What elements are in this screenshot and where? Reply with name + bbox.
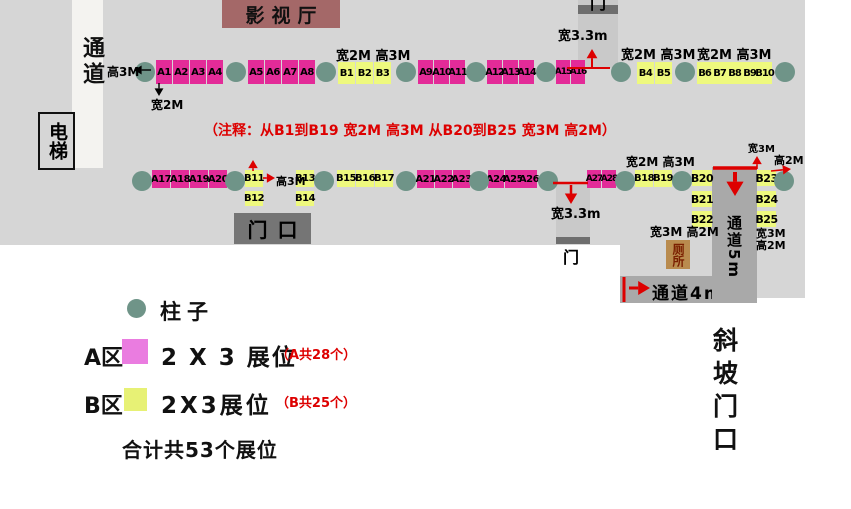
booth-a6: A6 <box>265 60 281 84</box>
column-marker <box>469 171 489 191</box>
booth-a9: A9 <box>418 60 433 84</box>
booth-layer: A1A2A3A4A5A6A7A8B1B2B3A9A10A11A12A13A14A… <box>0 0 851 509</box>
dimension-label: 宽3.3m <box>558 25 608 44</box>
column-marker <box>466 62 486 82</box>
booth-b6: B6 <box>697 62 712 84</box>
booth-a27: A27 <box>587 170 601 188</box>
floor-plan: 通道 电梯 影视厅 门 门 门口 通道4m 通道5m 厕所 斜坡门口 （注释：从… <box>0 0 851 509</box>
booth-b18: B18 <box>635 170 653 187</box>
column-marker <box>615 171 635 191</box>
column-marker <box>611 62 631 82</box>
booth-a26: A26 <box>521 170 537 188</box>
booth-b14: B14 <box>296 191 314 206</box>
booth-b10: B10 <box>757 62 772 84</box>
column-marker <box>536 62 556 82</box>
booth-b19: B19 <box>654 170 672 187</box>
column-marker <box>775 62 795 82</box>
dimension-label: 宽3M 高2M <box>650 223 719 240</box>
booth-a12: A12 <box>487 60 502 84</box>
legend-column-swatch <box>127 299 146 318</box>
booth-b4: B4 <box>637 62 654 84</box>
booth-a14: A14 <box>519 60 534 84</box>
booth-a16: A16 <box>571 60 585 84</box>
booth-b12: B12 <box>245 191 263 206</box>
booth-a18: A18 <box>171 170 189 188</box>
booth-a23: A23 <box>453 170 470 188</box>
legend-total: 合计共53个展位 <box>122 434 278 463</box>
legend-a-zone: A区 <box>84 340 123 372</box>
dimension-label: 宽2M 高3M <box>336 45 411 64</box>
booth-a10: A10 <box>434 60 449 84</box>
booth-a21: A21 <box>417 170 434 188</box>
booth-b20: B20 <box>692 170 712 186</box>
booth-a8: A8 <box>299 60 315 84</box>
booth-b16: B16 <box>356 170 374 187</box>
booth-a3: A3 <box>190 60 206 84</box>
legend-a-swatch <box>122 339 148 364</box>
booth-b11: B11 <box>245 170 263 187</box>
booth-b23: B23 <box>757 170 776 186</box>
legend-b-booth: 2X3展位 <box>161 386 272 420</box>
booth-a22: A22 <box>435 170 452 188</box>
booth-b1: B1 <box>338 62 355 84</box>
dimension-label: 宽2M 高3M <box>697 44 772 63</box>
column-marker <box>774 171 794 191</box>
booth-b21: B21 <box>692 191 712 207</box>
column-marker <box>396 171 416 191</box>
column-marker <box>225 171 245 191</box>
column-marker <box>672 171 692 191</box>
legend-b-zone: B区 <box>84 388 123 420</box>
booth-a1: A1 <box>156 60 172 84</box>
booth-b7: B7 <box>712 62 727 84</box>
legend-column-label: 柱子 <box>160 296 214 326</box>
column-marker <box>132 171 152 191</box>
booth-a28: A28 <box>602 170 616 188</box>
booth-a11: A11 <box>450 60 465 84</box>
dimension-label: 高2M <box>756 237 786 253</box>
dimension-label: 宽2M <box>151 96 183 113</box>
booth-a7: A7 <box>282 60 298 84</box>
booth-b2: B2 <box>356 62 373 84</box>
dimension-label: 高3M <box>276 173 306 189</box>
column-marker <box>316 62 336 82</box>
column-marker <box>538 171 558 191</box>
booth-a4: A4 <box>207 60 223 84</box>
booth-a2: A2 <box>173 60 189 84</box>
booth-a15: A15 <box>556 60 570 84</box>
column-marker <box>314 171 334 191</box>
booth-b5: B5 <box>655 62 672 84</box>
dimension-label: 宽2M 高3M <box>621 44 696 63</box>
legend-a-count: （A共28个） <box>276 344 356 363</box>
legend-b-swatch <box>124 388 147 411</box>
booth-b15: B15 <box>337 170 355 187</box>
booth-b17: B17 <box>375 170 393 187</box>
booth-a24: A24 <box>488 170 504 188</box>
column-marker <box>675 62 695 82</box>
column-marker <box>226 62 246 82</box>
legend-b-count: （B共25个） <box>276 392 356 411</box>
booth-a5: A5 <box>248 60 264 84</box>
booth-b24: B24 <box>757 191 776 207</box>
dimension-label: 宽3.3m <box>551 203 601 222</box>
dimension-label: 高2M <box>774 152 804 168</box>
booth-b8: B8 <box>727 62 742 84</box>
booth-a19: A19 <box>190 170 208 188</box>
column-marker <box>396 62 416 82</box>
booth-a17: A17 <box>152 170 170 188</box>
dimension-label: 高3M <box>107 63 139 80</box>
dimension-label: 宽2M 高3M <box>626 153 695 170</box>
booth-a13: A13 <box>503 60 518 84</box>
booth-b3: B3 <box>374 62 391 84</box>
dimension-label: 宽3M <box>748 140 775 155</box>
